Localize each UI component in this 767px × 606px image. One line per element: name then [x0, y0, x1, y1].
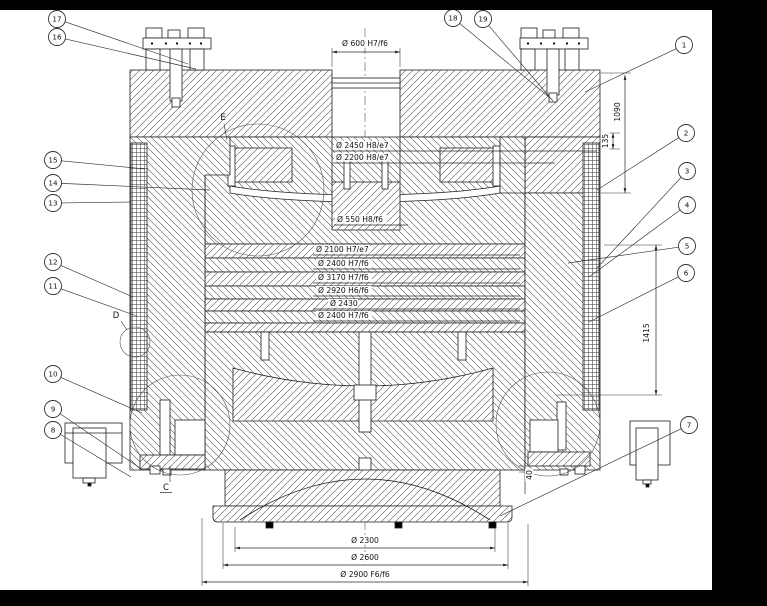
svg-text:1: 1 [682, 41, 687, 50]
svg-text:E: E [220, 113, 225, 123]
svg-text:15: 15 [48, 156, 57, 165]
svg-text:10: 10 [48, 370, 58, 379]
base-block [213, 470, 512, 528]
svg-text:Ø 2900 F6/f6: Ø 2900 F6/f6 [340, 570, 390, 579]
svg-text:1090: 1090 [613, 102, 622, 121]
svg-text:9: 9 [51, 405, 56, 414]
svg-text:Ø 2430: Ø 2430 [330, 299, 358, 308]
svg-text:Ø 2300: Ø 2300 [351, 536, 379, 545]
svg-text:17: 17 [52, 15, 61, 24]
svg-text:Ø 550 H8/f6: Ø 550 H8/f6 [337, 215, 383, 224]
svg-text:D: D [113, 311, 120, 321]
svg-text:1415: 1415 [642, 323, 651, 342]
svg-text:3: 3 [685, 167, 690, 176]
engineering-drawing-page: Ø 600 H7/f6Ø 2450 H8/e7Ø 2200 H8/e7Ø 550… [0, 0, 767, 606]
piston-assembly [205, 332, 525, 478]
svg-text:Ø 3170 H7/f6: Ø 3170 H7/f6 [318, 273, 369, 282]
svg-text:2: 2 [684, 129, 689, 138]
svg-text:Ø 2400 H7/f6: Ø 2400 H7/f6 [318, 311, 369, 320]
svg-text:13: 13 [48, 199, 57, 208]
svg-text:14: 14 [48, 179, 58, 188]
svg-text:Ø 2200 H8/e7: Ø 2200 H8/e7 [336, 153, 389, 162]
svg-text:7: 7 [687, 421, 692, 430]
svg-text:Ø 2920 H6/f6: Ø 2920 H6/f6 [318, 286, 369, 295]
svg-text:18: 18 [448, 14, 458, 23]
svg-text:5: 5 [685, 242, 690, 251]
svg-text:Ø 2100 H7/e7: Ø 2100 H7/e7 [316, 245, 369, 254]
svg-text:40: 40 [525, 470, 534, 480]
svg-text:12: 12 [48, 258, 57, 267]
svg-text:Ø 2400 H7/f6: Ø 2400 H7/f6 [318, 259, 369, 268]
svg-text:Ø 2450 H8/e7: Ø 2450 H8/e7 [336, 141, 389, 150]
svg-text:Ø 2600: Ø 2600 [351, 553, 379, 562]
svg-text:C: C [163, 483, 169, 493]
svg-text:6: 6 [684, 269, 689, 278]
svg-text:19: 19 [478, 15, 488, 24]
svg-text:11: 11 [48, 282, 57, 291]
svg-text:16: 16 [52, 33, 62, 42]
svg-text:Ø 600 H7/f6: Ø 600 H7/f6 [342, 39, 388, 48]
press-section-drawing: Ø 600 H7/f6Ø 2450 H8/e7Ø 2200 H8/e7Ø 550… [0, 0, 767, 606]
heater-strip-right [583, 143, 599, 410]
svg-text:135: 135 [601, 134, 610, 149]
svg-text:4: 4 [685, 201, 690, 210]
heater-strip-left [131, 143, 147, 410]
svg-text:8: 8 [51, 426, 56, 435]
